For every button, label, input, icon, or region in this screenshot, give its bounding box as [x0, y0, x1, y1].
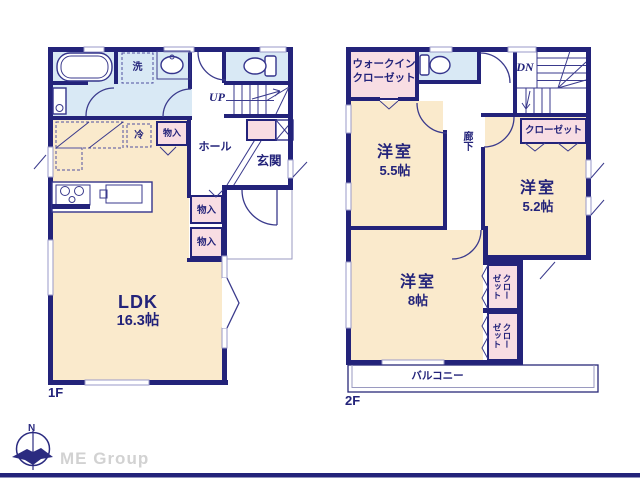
stairs-up-label: UP	[203, 90, 231, 104]
company-logo-text: ME Group	[60, 449, 149, 469]
bathtub-icon	[57, 53, 112, 81]
bedroom55-name-label: 洋室	[350, 144, 440, 163]
bedroom52-size-label: 5.2帖	[494, 199, 582, 214]
stairs-down-label: DN	[511, 60, 539, 74]
fridge-label: 冷	[127, 130, 151, 141]
floor2-label: 2F	[345, 393, 360, 408]
toilet2f-icon	[420, 55, 450, 75]
footer-rule	[0, 473, 640, 478]
walk-in-closet-label-line1: ウォークイン	[350, 58, 418, 70]
bay-window-gap	[222, 278, 228, 328]
entrance-porch	[227, 190, 292, 259]
balcony-label: バルコニー	[390, 370, 485, 382]
closet-b-label: クローゼット	[521, 125, 586, 136]
bedroom8-size-label: 8帖	[372, 293, 464, 308]
closet-c1-label: クローゼット	[492, 272, 512, 302]
compass-icon	[12, 431, 53, 470]
floorplan-graphics	[0, 0, 640, 480]
hall-label: ホール	[197, 141, 233, 154]
storage-hall-2-label: 物入	[191, 237, 222, 248]
compass-north-label: N	[28, 423, 35, 435]
ldk-name-label: LDK	[95, 292, 181, 313]
bedroom8-name-label: 洋室	[372, 274, 464, 293]
floor1-label: 1F	[48, 385, 63, 400]
bay-window	[227, 278, 239, 328]
floor1-plan	[34, 47, 307, 385]
understair-storage-box	[247, 120, 276, 140]
bedroom55-size-label: 5.5帖	[350, 163, 440, 178]
ldk-size-label: 16.3帖	[95, 313, 181, 330]
walk-in-closet-label-line2: クローゼット	[350, 72, 418, 84]
storage-hall-1-label: 物入	[191, 205, 222, 216]
corridor-label: 廊下	[460, 126, 472, 156]
floorplan-page: UP 洗 ホール 玄関 物入 冷 物入 物入 LDK 16.3帖 1F ウォーク…	[0, 0, 640, 480]
storage-kitchen-label: 物入	[157, 128, 187, 139]
toilet1f-icon	[244, 56, 276, 76]
bedroom52-name-label: 洋室	[494, 180, 582, 199]
laundry-label: 洗	[122, 62, 153, 74]
washing-machine-icon	[53, 88, 66, 114]
kitchen-counter	[52, 182, 152, 212]
stairs-1f	[226, 85, 289, 114]
entrance-label: 玄関	[251, 154, 287, 169]
floor2-plan	[346, 47, 604, 392]
closet-c2-label: クローゼット	[492, 321, 512, 351]
